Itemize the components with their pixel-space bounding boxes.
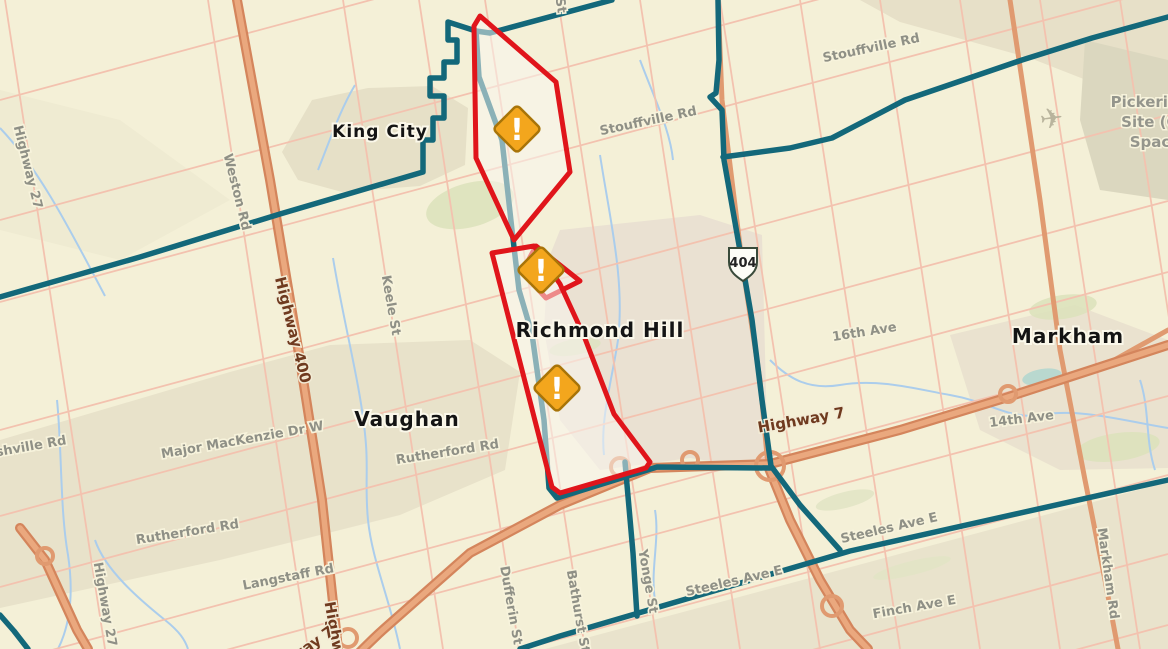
alert-exclamation: ! (510, 113, 524, 148)
alert-exclamation: ! (534, 254, 548, 289)
area-label: Pickering (1111, 93, 1168, 111)
highway-shield-number: 404 (729, 256, 756, 271)
alert-exclamation: ! (550, 372, 564, 407)
city-label: Richmond Hill (516, 318, 685, 342)
city-label: Vaughan (354, 407, 459, 431)
area-label: Site (G (1121, 113, 1168, 131)
map-canvas[interactable]: 404 ✈ Highway 27Weston RdStouffville RdS… (0, 0, 1168, 649)
city-label: King City (332, 122, 428, 142)
city-label: Markham (1012, 324, 1124, 348)
area-label: Spac (1130, 133, 1168, 151)
airport-icon: ✈ (1038, 101, 1066, 137)
map: 404 ✈ Highway 27Weston RdStouffville RdS… (0, 0, 1168, 649)
